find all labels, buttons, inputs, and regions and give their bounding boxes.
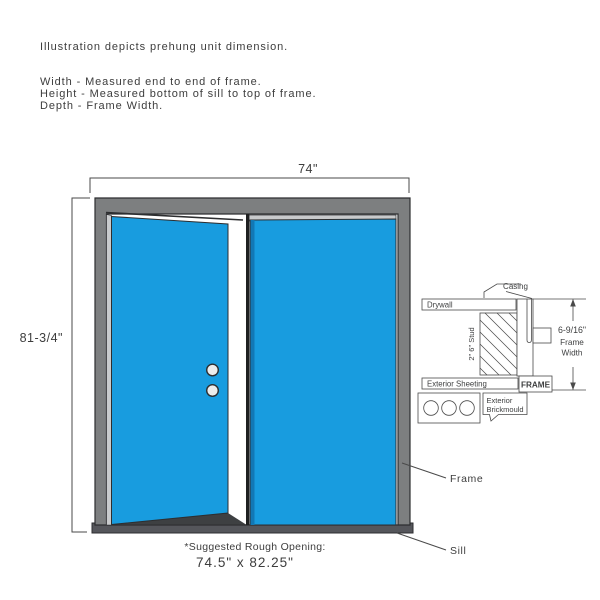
- left-door-hinge-reveal: [107, 215, 112, 526]
- frame-section-label: FRAME: [521, 381, 551, 390]
- right-door-panel: [246, 214, 396, 525]
- brickmould-bead-1: [424, 401, 439, 416]
- wall-section-detail: Casing Drywall 2" 6" Stud: [418, 282, 586, 423]
- right-door-face: [250, 219, 396, 525]
- door-knob: [207, 385, 219, 397]
- brickmould-bead-3: [460, 401, 475, 416]
- rough-opening-value: 74.5" x 82.25": [85, 555, 405, 570]
- brickmould-section: Exterior Brickmould: [418, 393, 527, 423]
- height-dimension-bracket: 81-3/4": [20, 198, 90, 532]
- prehung-door-unit: Frame Sill: [92, 198, 483, 557]
- stud-label: 2" 6" Stud: [467, 327, 476, 360]
- drywall-label: Drywall: [427, 301, 453, 310]
- frame-pointer: Frame: [402, 463, 483, 485]
- door-diagram: 74" 81-3/4": [0, 0, 600, 600]
- width-dimension-label: 74": [298, 162, 318, 176]
- height-dimension-label: 81-3/4": [20, 331, 63, 345]
- frame-pointer-label: Frame: [450, 473, 483, 485]
- arrow-down-icon: [570, 383, 576, 391]
- width-dimension-bracket: 74": [90, 162, 409, 193]
- casing-label: Casing: [503, 282, 528, 291]
- frame-width-caption-line1: Frame: [560, 338, 584, 347]
- left-door-panel: [106, 213, 246, 526]
- meeting-stile: [246, 214, 249, 525]
- frame-jamb-profile: FRAME: [517, 299, 552, 392]
- brickmould-label-line1: Exterior: [487, 396, 513, 405]
- rough-opening-caption: *Suggested Rough Opening:: [90, 541, 420, 553]
- brickmould-bead-2: [442, 401, 457, 416]
- frame-width-caption-line2: Width: [562, 349, 583, 358]
- sill-pointer-label: Sill: [450, 545, 466, 557]
- casing-leader: [506, 292, 532, 299]
- frame-width-dimension-label: 6-9/16": [558, 325, 586, 335]
- door-spec-illustration: Illustration depicts prehung unit dimens…: [0, 0, 600, 600]
- brickmould-label-line2: Brickmould: [487, 405, 524, 414]
- exterior-sheeting-label: Exterior Sheeting: [427, 380, 487, 389]
- deadbolt-knob: [207, 364, 219, 376]
- arrow-up-icon: [570, 299, 576, 307]
- stud-section: 2" 6" Stud: [467, 313, 517, 375]
- right-door-edge-shade: [251, 220, 255, 525]
